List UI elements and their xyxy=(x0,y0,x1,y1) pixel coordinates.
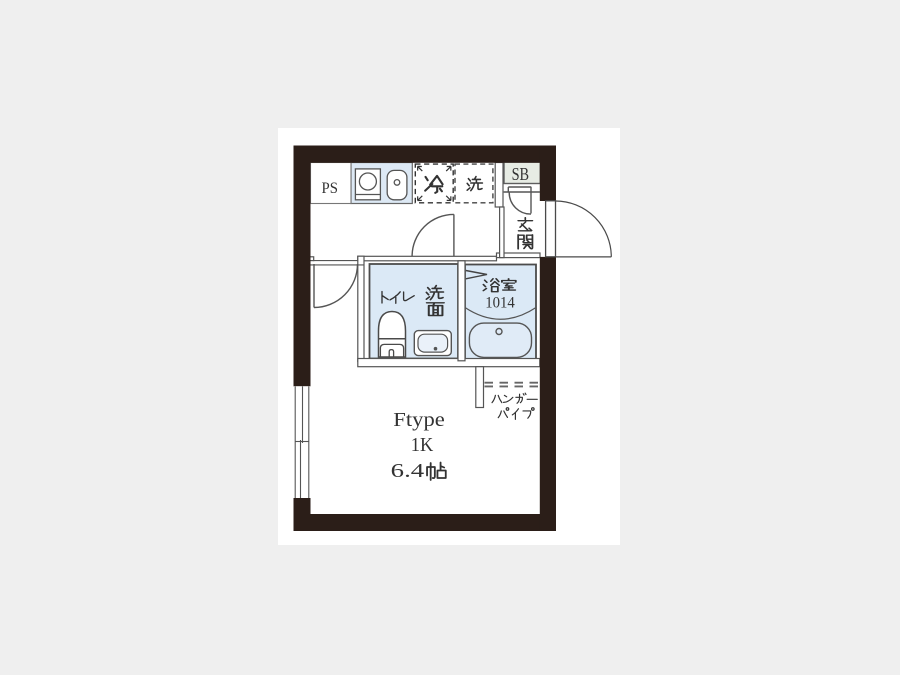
svg-text:1K: 1K xyxy=(411,434,434,456)
svg-text:1014: 1014 xyxy=(485,294,515,311)
svg-text:PS: PS xyxy=(322,180,338,197)
svg-text:Ftype: Ftype xyxy=(393,409,445,431)
svg-text:6.4: 6.4 xyxy=(391,460,425,482)
svg-text:SB: SB xyxy=(512,164,529,184)
